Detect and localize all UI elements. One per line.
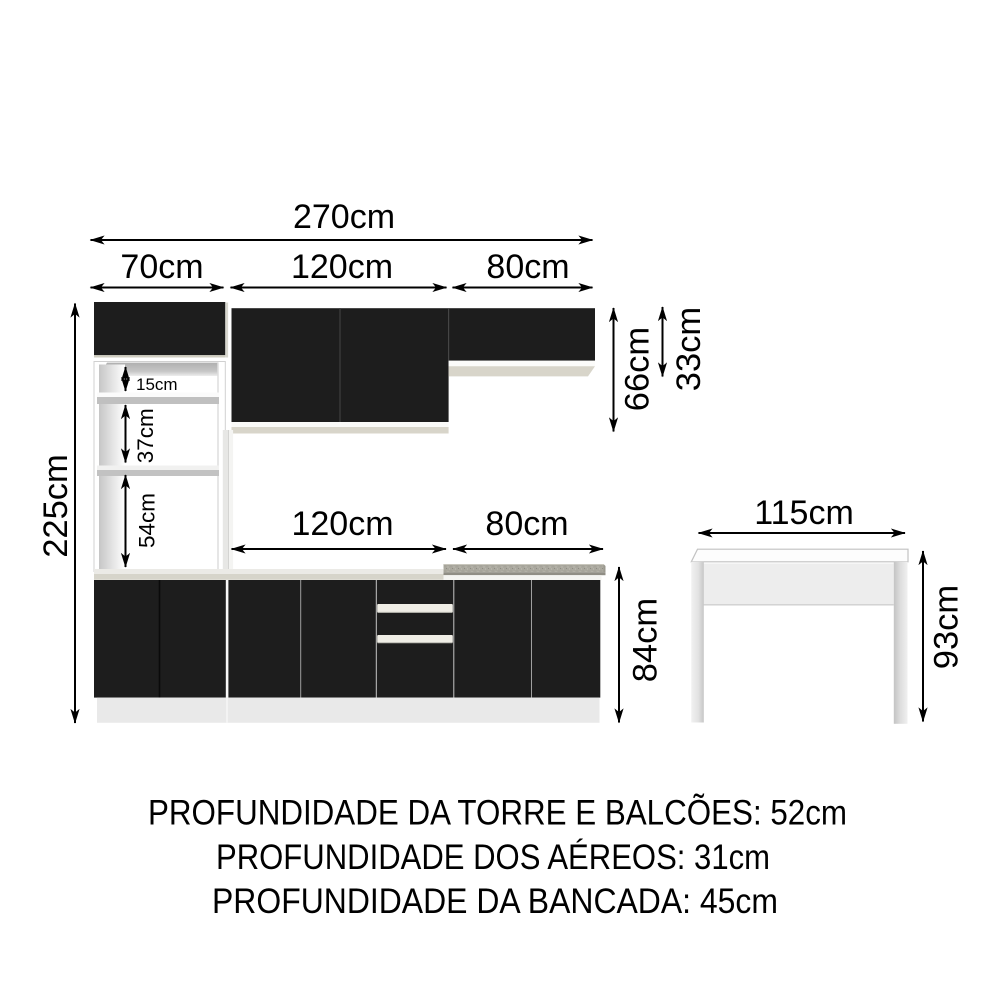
svg-text:37cm: 37cm <box>133 408 158 463</box>
svg-text:33cm: 33cm <box>670 307 708 391</box>
svg-text:80cm: 80cm <box>485 505 568 543</box>
svg-text:15cm: 15cm <box>136 375 178 394</box>
svg-text:PROFUNDIDADE DOS AÉREOS: 31cm: PROFUNDIDADE DOS AÉREOS: 31cm <box>216 838 770 877</box>
svg-text:120cm: 120cm <box>291 505 393 543</box>
svg-text:93cm: 93cm <box>928 585 966 669</box>
svg-text:PROFUNDIDADE DA BANCADA: 45cm: PROFUNDIDADE DA BANCADA: 45cm <box>212 882 778 921</box>
svg-text:PROFUNDIDADE DA TORRE E BALCÕE: PROFUNDIDADE DA TORRE E BALCÕES: 52cm <box>148 793 847 833</box>
svg-text:120cm: 120cm <box>291 248 393 286</box>
svg-text:70cm: 70cm <box>120 248 203 286</box>
svg-text:66cm: 66cm <box>619 327 657 411</box>
svg-text:225cm: 225cm <box>37 454 75 558</box>
svg-text:84cm: 84cm <box>627 598 665 682</box>
svg-text:80cm: 80cm <box>486 248 569 286</box>
svg-text:54cm: 54cm <box>135 493 160 548</box>
svg-text:115cm: 115cm <box>754 494 854 532</box>
svg-text:270cm: 270cm <box>293 198 395 236</box>
